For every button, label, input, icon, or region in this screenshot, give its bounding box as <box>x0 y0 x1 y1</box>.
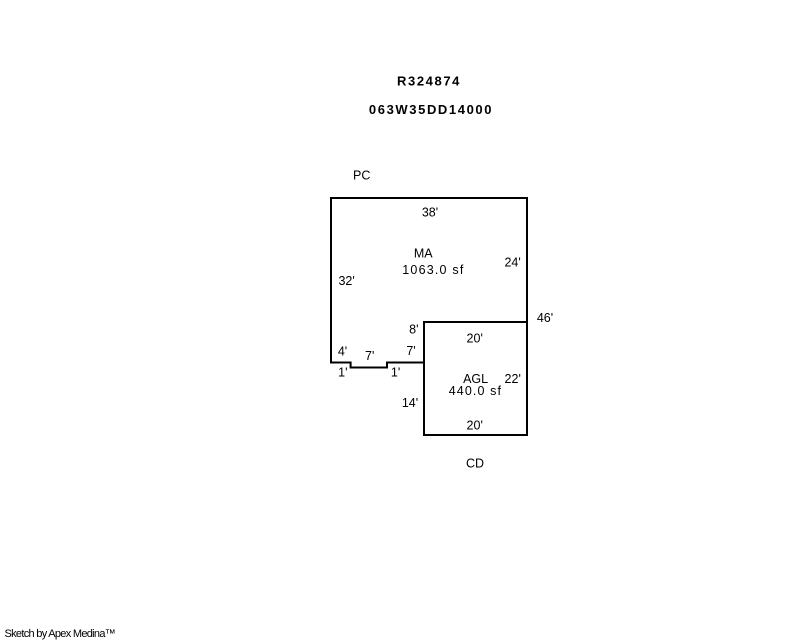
svg-text:063W35DD14000: 063W35DD14000 <box>369 102 493 117</box>
svg-text:20': 20' <box>467 332 483 346</box>
svg-text:1': 1' <box>391 365 400 379</box>
svg-text:4': 4' <box>338 344 347 358</box>
svg-text:32': 32' <box>338 274 354 288</box>
svg-text:20': 20' <box>467 419 483 433</box>
svg-text:46': 46' <box>537 311 553 325</box>
svg-text:440.0 sf: 440.0 sf <box>449 384 502 398</box>
svg-text:R324874: R324874 <box>397 74 461 89</box>
svg-text:14': 14' <box>402 396 418 410</box>
svg-text:1': 1' <box>338 365 347 379</box>
svg-text:CD: CD <box>466 457 484 471</box>
svg-text:38': 38' <box>422 206 438 220</box>
svg-text:22': 22' <box>505 372 521 386</box>
svg-text:PC: PC <box>353 169 370 183</box>
svg-text:MA: MA <box>414 247 433 261</box>
svg-text:7': 7' <box>406 344 415 358</box>
svg-text:24': 24' <box>504 255 520 269</box>
svg-text:7': 7' <box>365 349 374 363</box>
svg-text:8': 8' <box>409 323 418 337</box>
svg-text:1063.0 sf: 1063.0 sf <box>402 263 464 277</box>
svg-text:Sketch by Apex Medina™: Sketch by Apex Medina™ <box>5 628 116 640</box>
